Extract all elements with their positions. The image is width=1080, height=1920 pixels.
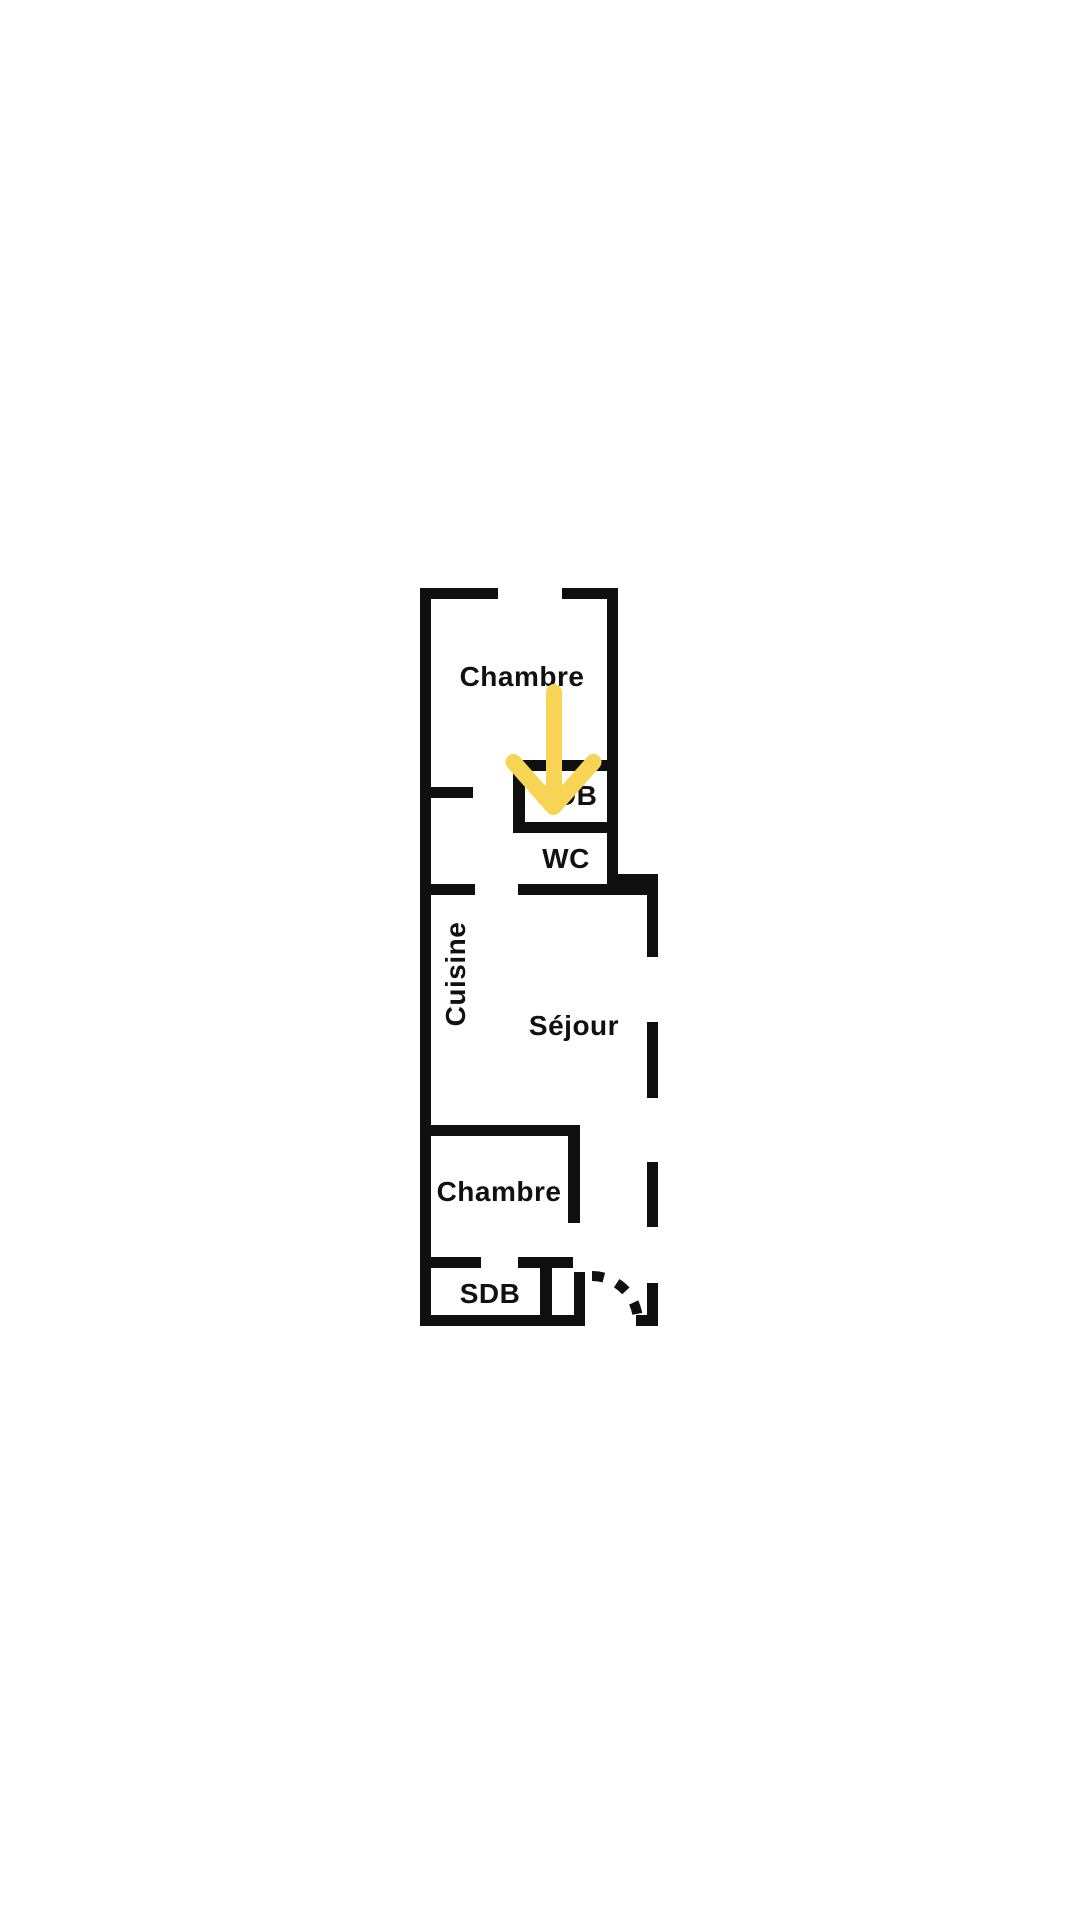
wall-living-top [518,884,658,895]
room-label-bedroom-top: Chambre [460,661,585,693]
wall-left-outer [420,588,431,1326]
wall-sdb2-top-mid [518,1257,573,1268]
wall-bedroom2-top [420,1125,580,1136]
screen: Chambre SDB WC Cuisine Séjour Chambre SD… [0,0,1080,1920]
wall-right-upper [607,588,618,895]
floor-plan: Chambre SDB WC Cuisine Séjour Chambre SD… [420,588,658,1326]
wall-bedroom-top-bottom-stub [431,787,473,798]
wall-bottom-end-cap [574,1272,585,1326]
wall-right-dash-2 [647,1022,658,1098]
room-label-kitchen: Cuisine [440,922,472,1027]
wall-sdb-bottom [513,822,618,833]
room-label-bathroom-top: SDB [537,780,598,812]
wall-corner-horizontal [636,1315,658,1326]
wall-kitchen-top-stub [431,884,475,895]
room-label-bathroom-bottom: SDB [460,1278,521,1310]
room-label-living-room: Séjour [529,1010,619,1042]
wall-bedroom2-right [568,1125,580,1223]
wall-sdb2-top-left-stub [431,1257,481,1268]
room-label-wc: WC [542,843,590,875]
wall-right-dash-3 [647,1162,658,1227]
wall-bottom-outer [420,1315,585,1326]
wall-sdb-top [513,760,618,771]
entry-door-arc [592,1276,638,1322]
wall-sdb2-right-divider [540,1268,552,1315]
wall-right-dash-solid [647,885,658,957]
wall-top-left-segment [420,588,498,599]
room-label-bedroom-bottom: Chambre [437,1176,562,1208]
